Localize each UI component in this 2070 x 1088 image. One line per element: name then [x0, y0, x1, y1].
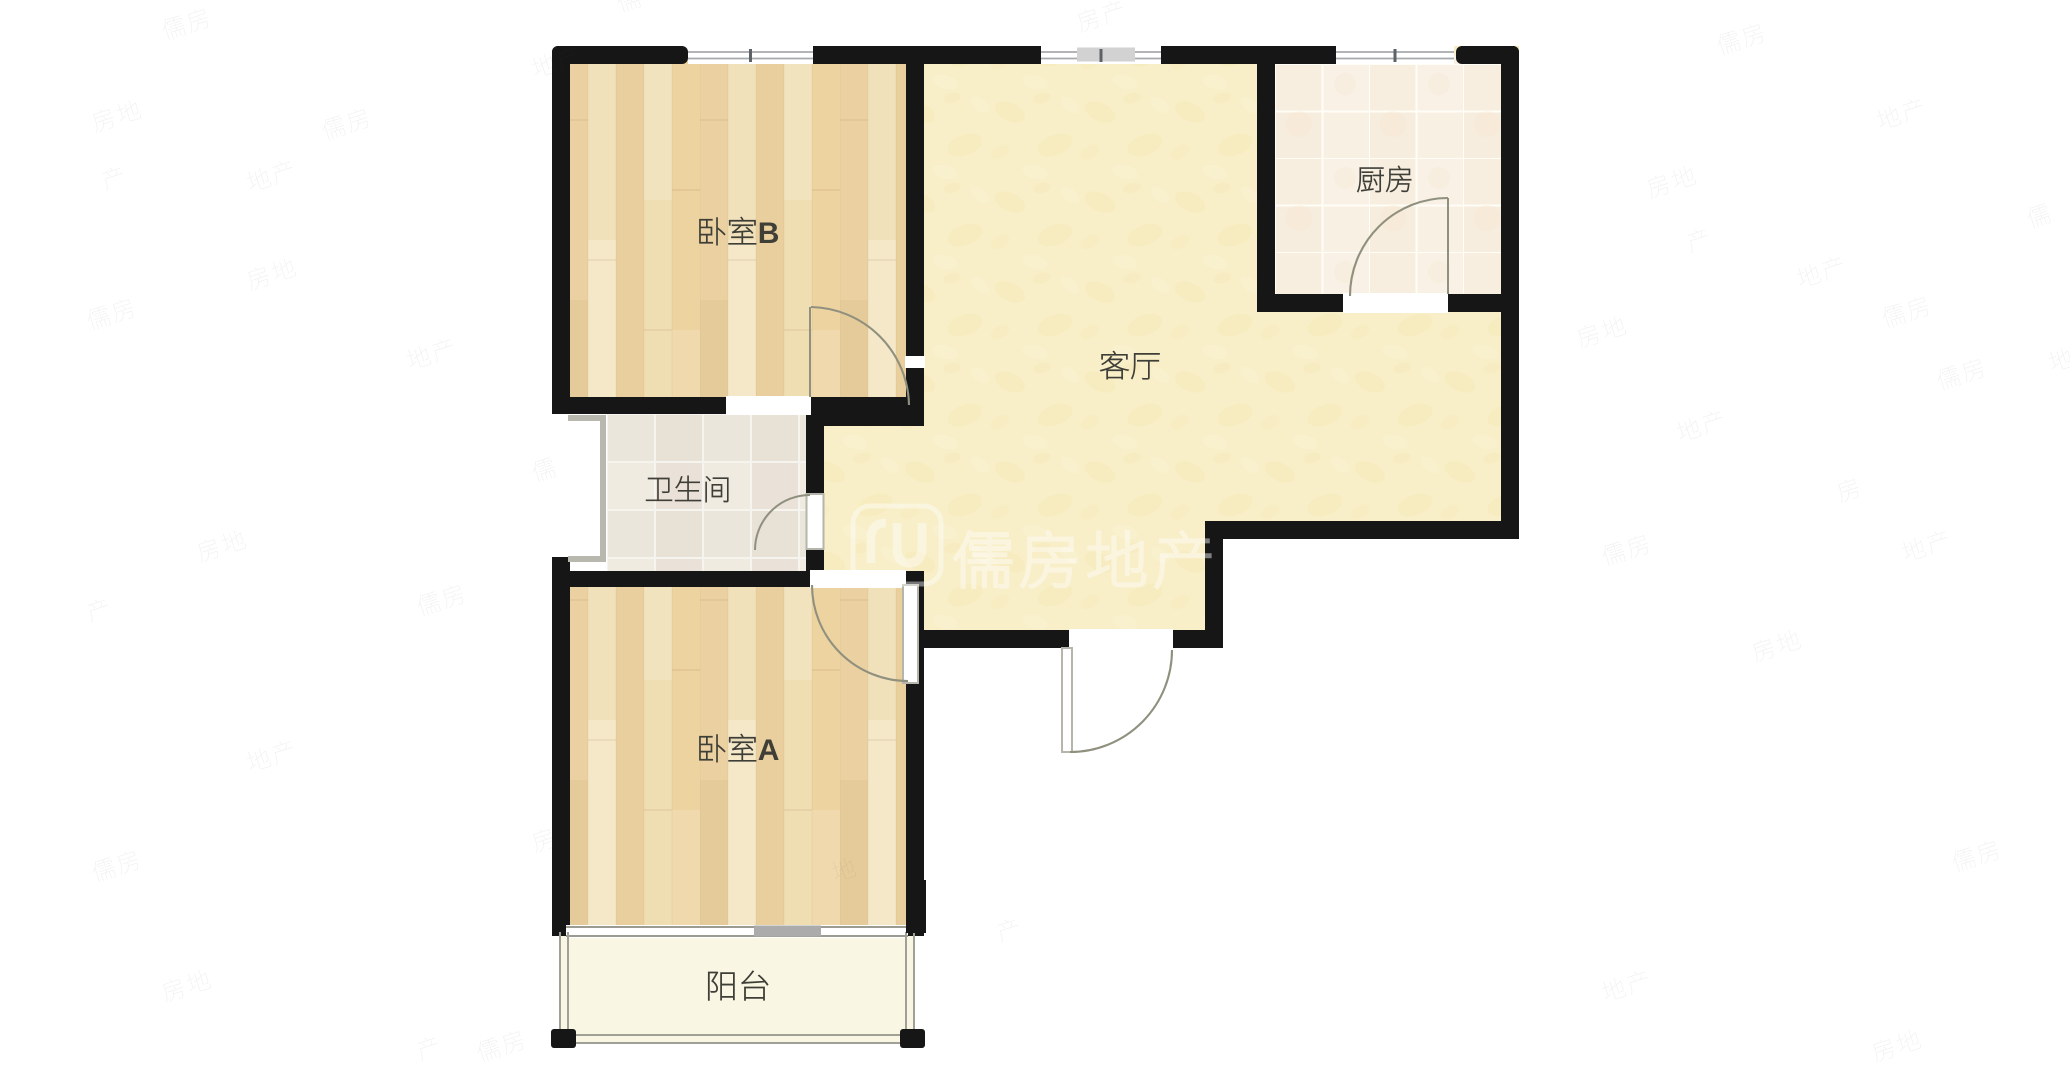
svg-text:A: A: [758, 734, 780, 767]
svg-text:B: B: [758, 217, 780, 250]
